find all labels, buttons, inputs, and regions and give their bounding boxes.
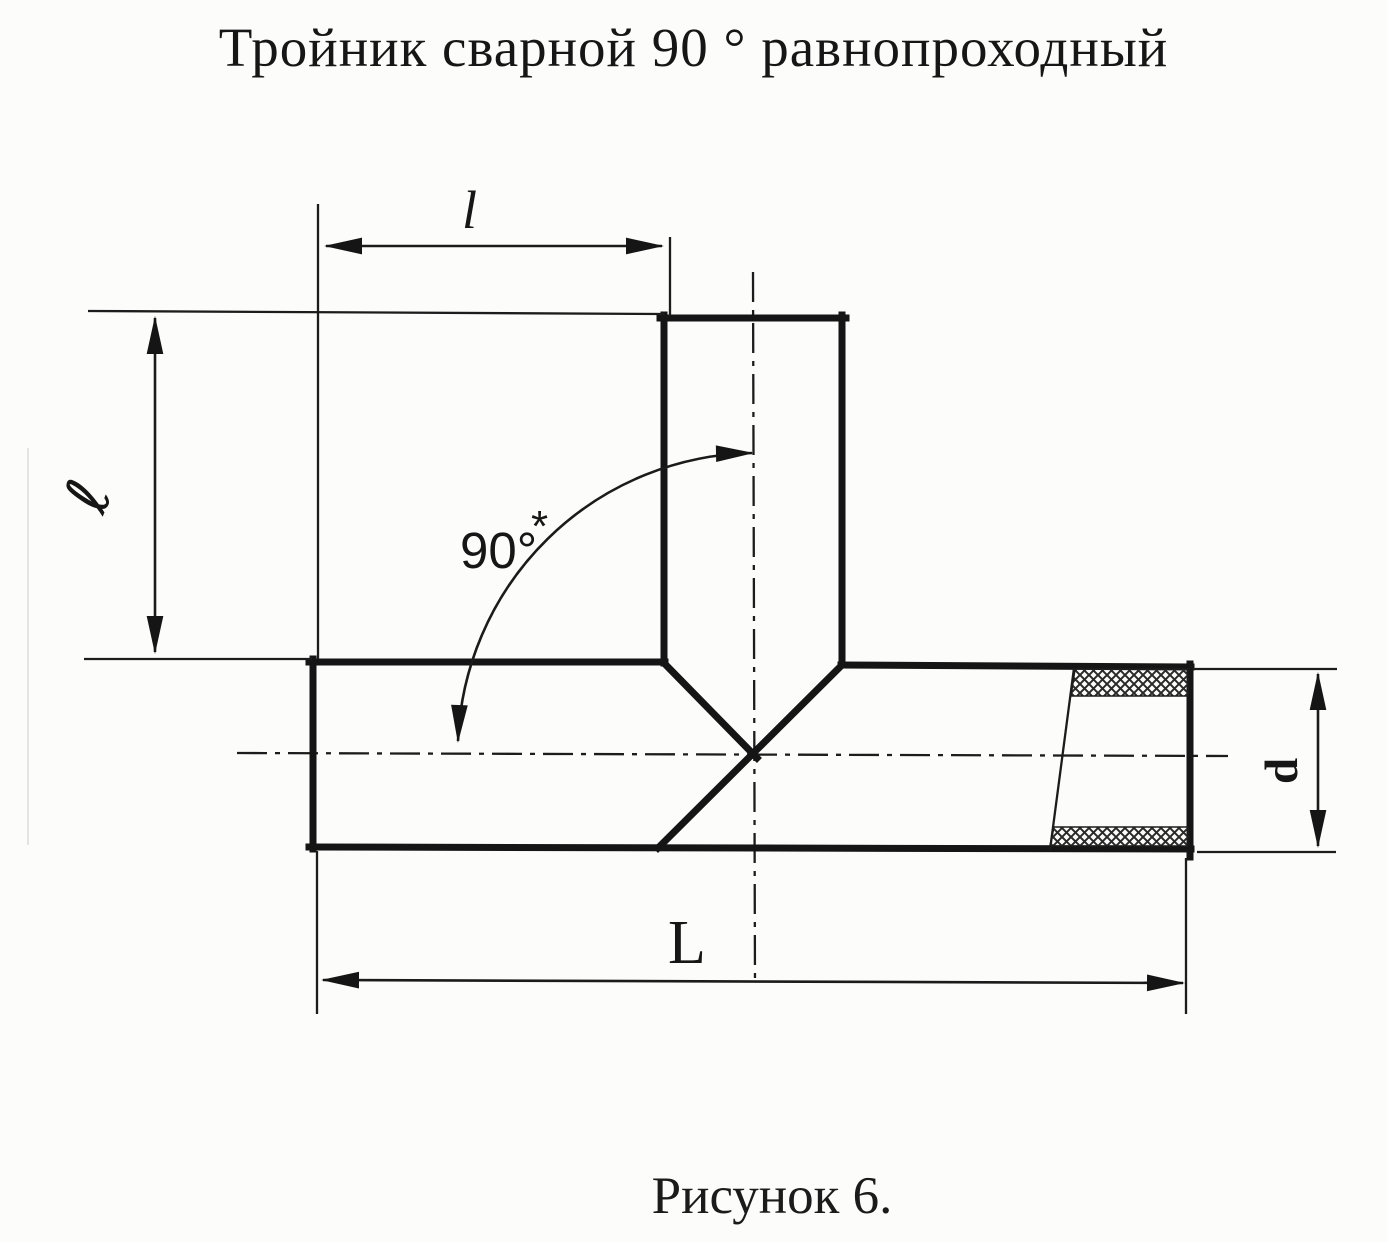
dimension-d-label: d (1256, 758, 1308, 784)
figure-caption: Рисунок 6. (652, 1166, 893, 1226)
extension-line-branch-top-level (88, 311, 664, 314)
centerline-horizontal (237, 753, 1228, 756)
main-pipe-bottom (309, 847, 1191, 849)
wall-hatch-bottom (1050, 827, 1188, 846)
pipe-wall-section (1050, 668, 1188, 850)
branch-pipe-outline (658, 315, 846, 848)
weld-chamfer-left (663, 662, 757, 758)
dimension-L: L (317, 851, 1186, 1014)
angle-arc (458, 453, 752, 741)
dimension-L-arrow (323, 980, 1183, 983)
dimension-ell-label: ℓ (49, 471, 127, 523)
drawing-sheet: Тройник сварной 90 ° равнопроходный (0, 0, 1387, 1242)
centerline-vertical (753, 272, 755, 986)
angle-label: 90° (460, 522, 537, 579)
angle-annotation: 90° * (458, 453, 752, 741)
tee-diagram: l ℓ 90° * L d (0, 0, 1387, 1242)
angle-footnote-marker: * (531, 502, 548, 551)
centerlines (237, 272, 1228, 986)
main-pipe-top-right (841, 665, 1191, 667)
wall-hatch-top (1071, 669, 1188, 696)
dimension-l-label: l (462, 180, 477, 240)
weld-chamfer-right (658, 664, 843, 848)
dimension-l: l (318, 180, 670, 659)
dimension-L-label: L (668, 909, 706, 977)
dimension-d: d (1193, 669, 1337, 852)
dimension-ell: ℓ (49, 311, 664, 659)
